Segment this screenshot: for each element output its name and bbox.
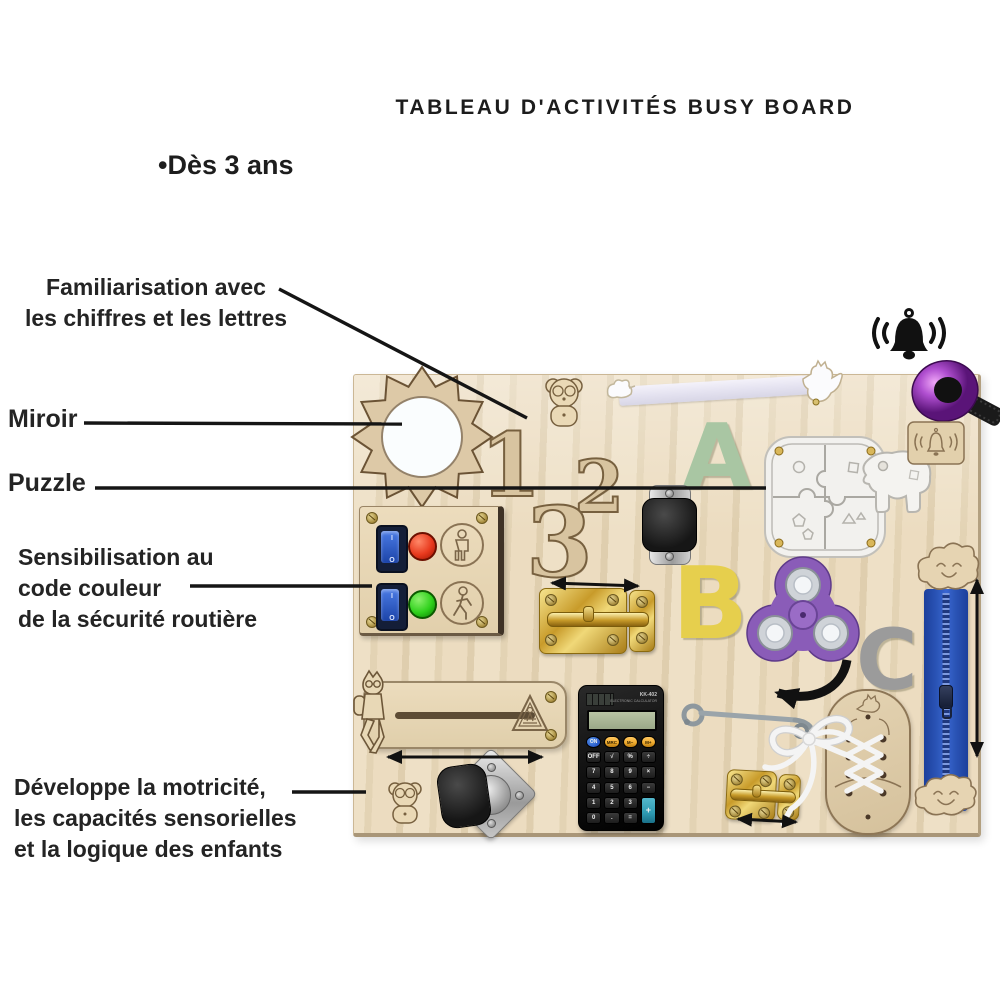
- calc-key: 3: [623, 797, 638, 809]
- calc-key: %: [623, 751, 638, 763]
- annotation-line: Puzzle: [8, 468, 86, 499]
- caster-screw: [665, 552, 674, 561]
- calc-key: 6: [623, 782, 638, 794]
- calc-key-mrc: MRC: [604, 736, 619, 748]
- letter-b: B: [672, 554, 748, 654]
- bell-plaque: [907, 421, 965, 465]
- elastic-strap: [619, 375, 814, 406]
- annotation-numbers-letters: Familiarisation avec les chiffres et les…: [10, 272, 302, 334]
- annotation-line: les chiffres et les lettres: [10, 303, 302, 334]
- green-light: [408, 590, 437, 619]
- calc-key: .: [604, 812, 619, 824]
- calculator-model: KK-402 ELECTRONIC CALCULATOR: [610, 692, 657, 704]
- calc-key: 0: [586, 812, 601, 824]
- caster-wheel-bottom: [433, 753, 543, 835]
- green-light-switch: I O: [376, 583, 408, 631]
- standing-person-plaque: [440, 523, 484, 567]
- annotation-line: code couleur: [18, 573, 257, 604]
- switch-on-mark: I: [378, 593, 406, 600]
- calc-key-on: ON: [586, 736, 601, 748]
- walking-person-icon: [442, 583, 482, 623]
- annotation-line: Familiarisation avec: [10, 272, 302, 303]
- calc-key: OFF: [586, 751, 601, 763]
- annotation-line: Sensibilisation au: [18, 542, 257, 573]
- calculator-display: [587, 710, 657, 731]
- wooden-boy-figure: [348, 669, 406, 759]
- calculator-keypad: ON MRC M− M+ OFF √ % ÷ 7 8 9 × 4 5 6 − 1…: [586, 736, 656, 824]
- calc-key: 7: [586, 766, 601, 778]
- annotation-line: et la logique des enfants: [14, 834, 297, 865]
- calc-key: 9: [623, 766, 638, 778]
- busy-board-product-image: TABLEAU D'ACTIVITÉS BUSY BOARD •Dès 3 an…: [0, 0, 1000, 1000]
- red-light-switch: I O: [376, 525, 408, 573]
- calc-key: ÷: [641, 751, 656, 763]
- calc-key: 4: [586, 782, 601, 794]
- page-title: TABLEAU D'ACTIVITÉS BUSY BOARD: [375, 96, 875, 120]
- traffic-light-switch-panel: I O I O: [359, 506, 504, 636]
- switch-on-mark: I: [378, 535, 406, 542]
- calc-key-mminus: M−: [623, 736, 638, 748]
- cloud-top: [915, 538, 981, 600]
- letter-a: A: [682, 413, 752, 503]
- switch-off-mark: O: [378, 557, 406, 564]
- switch-off-mark: O: [378, 615, 406, 622]
- fidget-spinner: [741, 549, 865, 673]
- caster-wheel: [642, 498, 697, 552]
- walking-person-plaque: [440, 581, 484, 625]
- annotation-puzzle: Puzzle: [8, 468, 86, 499]
- calc-key: −: [641, 782, 656, 794]
- brass-barrel-latch-large: [539, 584, 653, 654]
- caster-screw: [665, 489, 674, 498]
- shoe-laces: [757, 677, 977, 837]
- annotation-line: de la sécurité routière: [18, 604, 257, 635]
- annotation-mirror: Miroir: [8, 404, 77, 435]
- calc-key: 1: [586, 797, 601, 809]
- strap-rooster-icon: [795, 359, 845, 409]
- calc-key: 8: [604, 766, 619, 778]
- busy-board: 1 2 3 A B C: [353, 374, 981, 837]
- calc-key-mplus: M+: [641, 736, 656, 748]
- calc-key-plus: +: [641, 797, 656, 824]
- annotation-motor-skills: Développe la motricité, les capacités se…: [14, 772, 297, 865]
- standing-person-icon: [442, 525, 482, 565]
- calc-key: 5: [604, 782, 619, 794]
- latch-handle: [583, 606, 594, 622]
- calculator-brand-text: ELECTRONIC CALCULATOR: [610, 698, 657, 704]
- red-light: [408, 532, 437, 561]
- strap-dog-icon: [605, 375, 637, 405]
- teddy-bear-bottom: [385, 781, 425, 825]
- caster-wheel: [435, 762, 493, 830]
- calc-key: =: [623, 812, 638, 824]
- calculator: KK-402 ELECTRONIC CALCULATOR ON MRC M− M…: [578, 685, 664, 831]
- calc-key: √: [604, 751, 619, 763]
- wooden-number-3: 3: [526, 495, 593, 591]
- latch-bolt: [547, 612, 649, 627]
- teddy-bear-top: [542, 377, 586, 429]
- crossing-sign-icon: [511, 693, 549, 737]
- age-note: •Dès 3 ans: [158, 150, 294, 181]
- annotation-line: Développe la motricité,: [14, 772, 297, 803]
- sun-mirror: [350, 365, 494, 509]
- mirror-circle: [382, 397, 462, 477]
- annotation-line: Miroir: [8, 404, 77, 435]
- calc-key: ×: [641, 766, 656, 778]
- calc-key: 2: [604, 797, 619, 809]
- annotation-line: les capacités sensorielles: [14, 803, 297, 834]
- annotation-traffic-colors: Sensibilisation au code couleur de la sé…: [18, 542, 257, 635]
